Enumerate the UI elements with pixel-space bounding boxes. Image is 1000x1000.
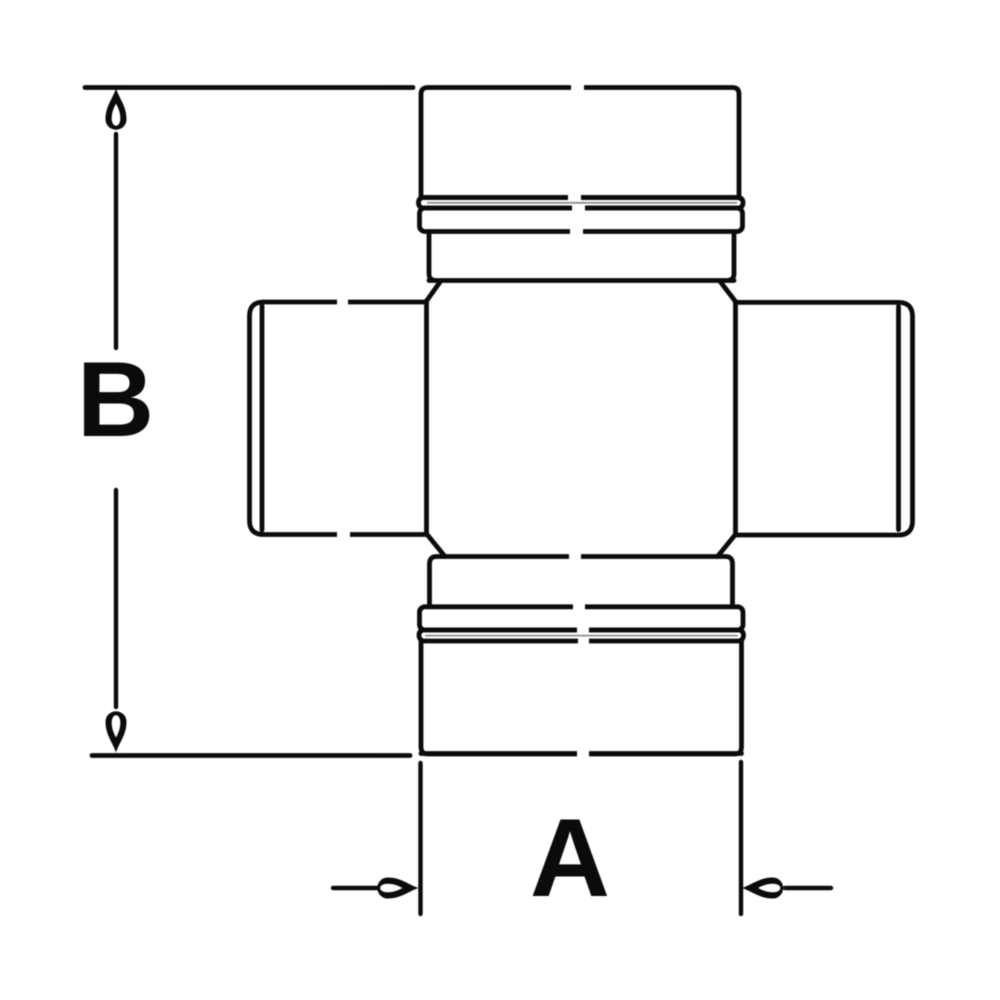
svg-text:A: A [530, 796, 610, 920]
svg-text:B: B [77, 339, 154, 459]
